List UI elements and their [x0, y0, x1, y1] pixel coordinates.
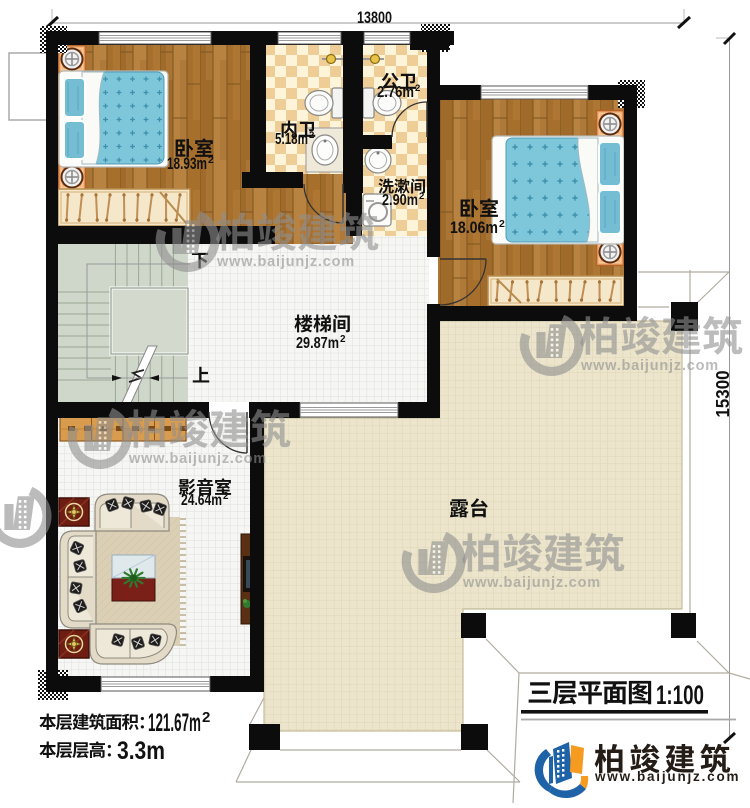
svg-text:www.baijunjz.com: www.baijunjz.com	[216, 254, 355, 270]
svg-text:2: 2	[309, 130, 314, 141]
svg-text:15300: 15300	[713, 371, 733, 418]
svg-text:2.76m: 2.76m	[377, 84, 414, 101]
svg-text:29.87m: 29.87m	[296, 335, 339, 352]
svg-text:www.baijunjz.com: www.baijunjz.com	[462, 575, 601, 591]
svg-text:2: 2	[223, 491, 229, 502]
svg-text:2: 2	[340, 334, 346, 345]
svg-text:2: 2	[415, 83, 420, 94]
svg-text:2: 2	[419, 191, 424, 202]
svg-text:www.baijunjz.com: www.baijunjz.com	[128, 451, 267, 467]
svg-text:121.67m: 121.67m	[148, 709, 201, 737]
svg-text:2: 2	[208, 154, 214, 166]
svg-text:2.90m: 2.90m	[382, 192, 418, 209]
svg-text:2: 2	[202, 709, 210, 726]
svg-text:18.06m: 18.06m	[450, 218, 498, 237]
svg-text:www.baijunjz.com: www.baijunjz.com	[580, 358, 719, 374]
svg-text:www.baijunjz.com: www.baijunjz.com	[594, 769, 740, 784]
svg-text:13800: 13800	[357, 9, 392, 27]
svg-text:24.64m: 24.64m	[181, 492, 222, 509]
svg-text:3.3m: 3.3m	[117, 737, 165, 765]
svg-text:5.18m: 5.18m	[275, 131, 308, 148]
svg-text:18.93m: 18.93m	[167, 154, 207, 173]
svg-text:2: 2	[499, 218, 505, 230]
svg-text:1:100: 1:100	[656, 680, 704, 710]
